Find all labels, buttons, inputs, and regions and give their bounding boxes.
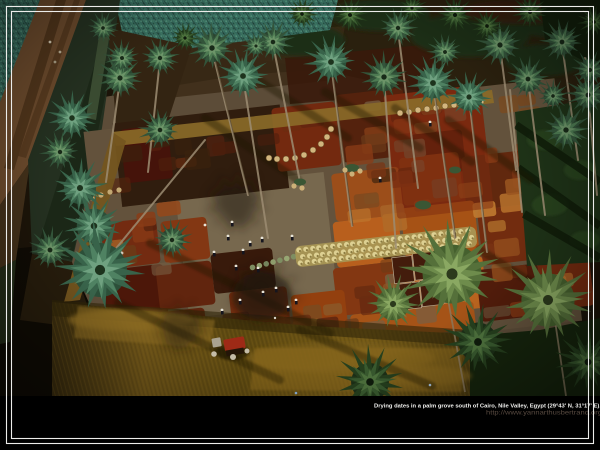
svg-text:http://www.yannarthusbertrand.: http://www.yannarthusbertrand.org — [486, 411, 600, 417]
svg-text:Drying dates in a palm grove s: Drying dates in a palm grove south of Ca… — [374, 404, 600, 410]
